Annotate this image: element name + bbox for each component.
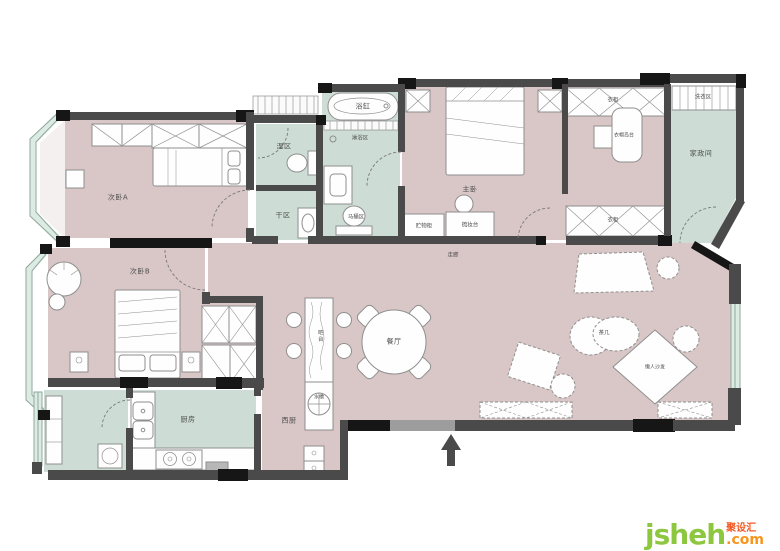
label-dining: 餐厅	[387, 339, 402, 346]
storage-planned	[480, 402, 572, 418]
side-table	[49, 294, 65, 310]
bar-stool	[337, 344, 352, 359]
label-bar: 吧台	[316, 330, 322, 343]
label-utility: 家政间	[690, 151, 713, 158]
label-west-kitchen: 西厨	[282, 418, 297, 425]
pillow	[228, 151, 240, 166]
entry-arrow-icon	[441, 434, 461, 466]
label-bedroom-a: 次卧A	[108, 195, 128, 202]
bay-window-b-inner	[32, 254, 46, 412]
closet-island-side	[594, 126, 612, 148]
nightstand	[66, 170, 84, 188]
dry-room-fixtures	[298, 208, 318, 238]
label-kitchen: 厨房	[181, 417, 196, 424]
label-bathtub: 浴缸	[356, 104, 371, 111]
nightstand	[182, 352, 200, 372]
label-bean-bag: 懒人沙发	[645, 366, 665, 371]
watermark-column: 聚设汇 .com	[726, 524, 764, 547]
bath-vanity-basin	[330, 174, 346, 196]
balcony-cabinet	[46, 396, 62, 464]
label-bedroom-b: 次卧B	[130, 269, 150, 276]
nightstand	[70, 352, 88, 372]
label-laundry: 洗衣区	[695, 95, 712, 101]
label-dresser: 梳妆台	[462, 223, 479, 229]
appliance	[304, 446, 324, 461]
label-coffee-table: 茶几	[598, 331, 609, 337]
label-shower: 淋浴区	[352, 136, 369, 142]
stool	[455, 195, 473, 213]
label-bar-sink: 水槽	[314, 396, 324, 401]
label-toilet: 马桶区	[348, 215, 365, 221]
bar-stool	[337, 313, 352, 328]
washer	[98, 444, 122, 468]
watermark-suffix: .com	[726, 534, 764, 547]
watermark: jsheh 聚设汇 .com	[645, 523, 764, 547]
pillow	[119, 355, 145, 371]
toilet-tank	[308, 151, 317, 175]
label-storage-cabinet: 贮物柜	[416, 224, 433, 230]
label-closet-top: 衣柜	[607, 98, 618, 104]
toilet2-tank	[336, 226, 372, 235]
pouf	[673, 326, 699, 352]
label-wet-zone: 湿区	[277, 144, 292, 151]
pillow	[228, 169, 240, 184]
toilet-bowl	[287, 154, 307, 172]
bar-stool	[287, 313, 302, 328]
floor-mat	[574, 252, 654, 293]
vanity-basin	[302, 214, 314, 232]
bathtub-drain	[384, 104, 388, 108]
hatch-window-top	[253, 96, 318, 114]
watermark-brand: jsheh	[645, 523, 725, 547]
hatch-strip-bath	[324, 121, 398, 130]
label-closet-bottom: 衣柜	[607, 218, 618, 224]
floorplan-drawing	[0, 0, 780, 551]
label-closet-island: 衣帽岛台	[614, 134, 634, 139]
pillow	[150, 355, 176, 371]
pouf	[657, 257, 679, 279]
floorplan-stage: 次卧A 湿区 干区 浴缸 淋浴区 马桶区 主卧 贮物柜 梳妆台 衣柜 衣帽岛台 …	[0, 0, 780, 551]
label-dry-zone: 干区	[276, 213, 291, 220]
label-master-bedroom: 主卧	[463, 187, 478, 194]
bar-stool	[287, 344, 302, 359]
label-hallway: 走廊	[447, 253, 458, 259]
pouf	[551, 374, 575, 398]
